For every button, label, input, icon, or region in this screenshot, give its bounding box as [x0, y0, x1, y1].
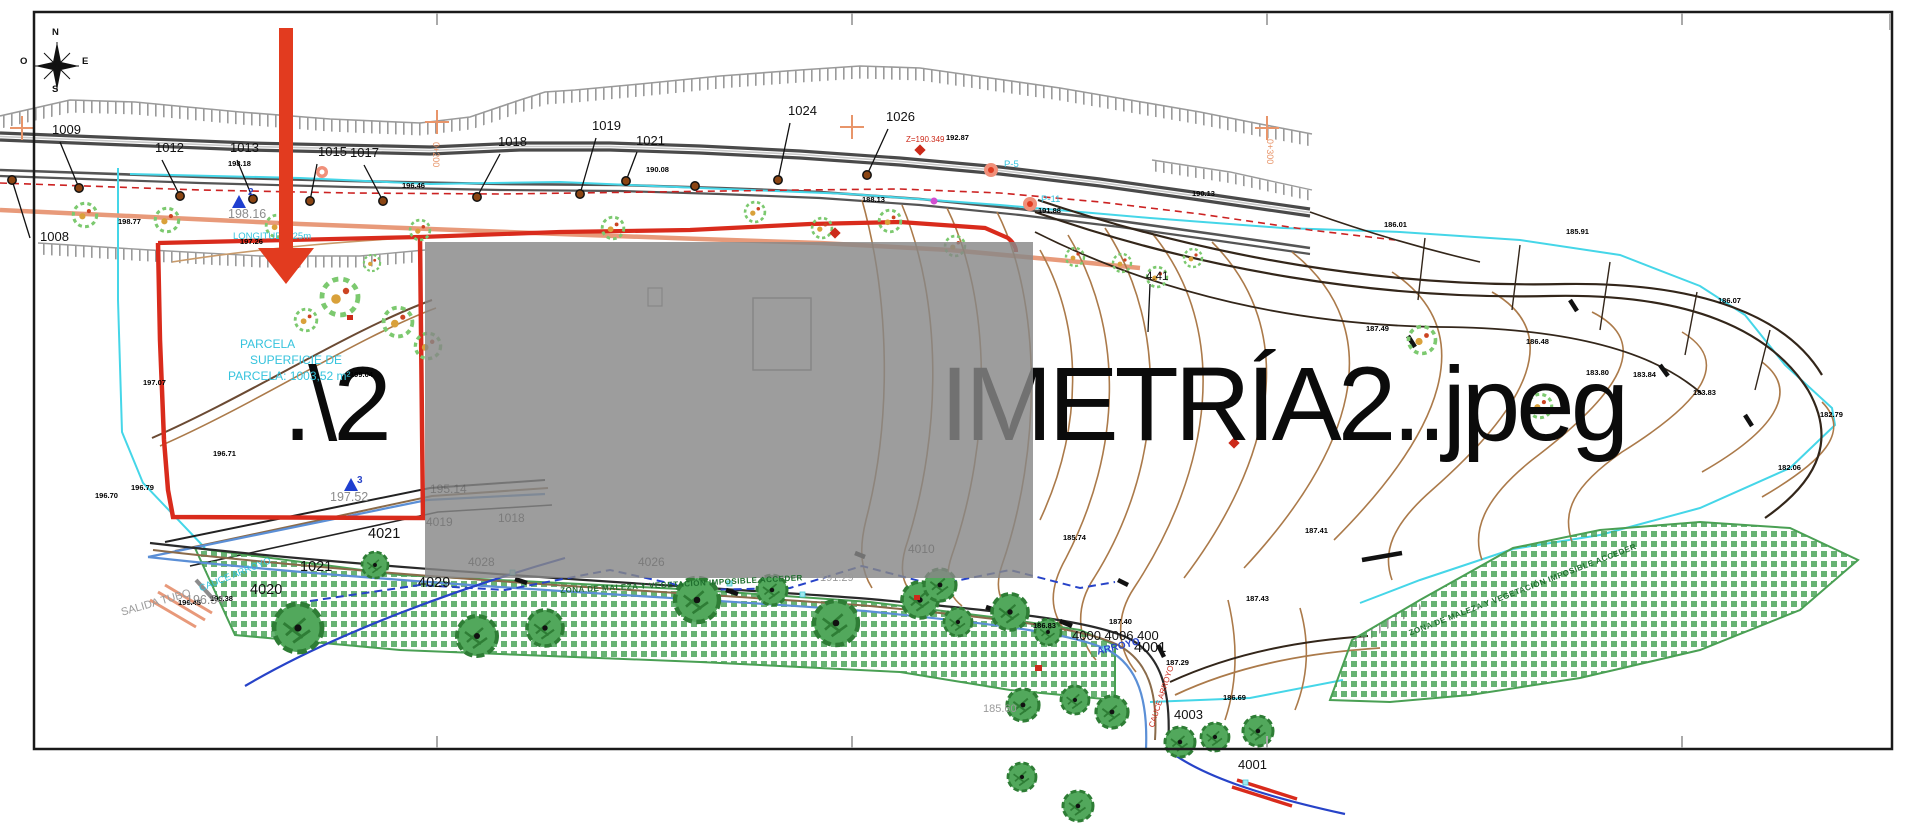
triangle-station-icon	[344, 478, 358, 491]
vegetation-zone-right	[1330, 522, 1858, 702]
watermark-filename-right: IMETRÍA2..jpeg	[940, 345, 1625, 465]
watermark-filename-left: .\2	[283, 345, 388, 465]
compass-rose-icon	[35, 42, 79, 90]
redaction-overlay	[425, 242, 1033, 578]
triangle-station-icon	[232, 195, 246, 208]
salida-tubo-structure	[150, 580, 214, 627]
survey-drawing-viewer: .\2 IMETRÍA2..jpeg NOES10081009101210131…	[0, 0, 1920, 826]
